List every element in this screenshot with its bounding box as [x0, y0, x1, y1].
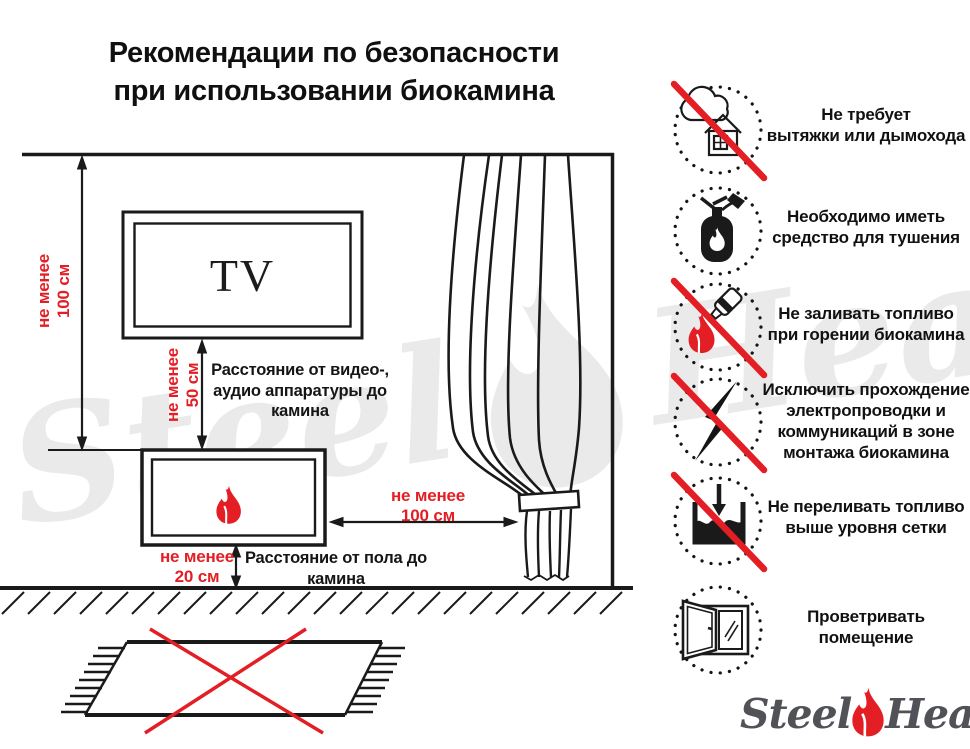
logo-heat-text: Heat	[885, 690, 970, 738]
extinguisher-shape	[701, 193, 745, 262]
infographic: Steel Heat Рекомендации по безопасности …	[0, 0, 970, 749]
fireplace-outline	[142, 450, 325, 545]
open-window-shape	[683, 601, 748, 659]
tv-label: TV	[123, 212, 362, 338]
rule-text-no-chimney: Не требует вытяжки или дымохода	[748, 104, 970, 146]
fuel-bottle-shape	[708, 287, 743, 322]
dim-fireplace-to-curtain: не менее 100 см	[338, 486, 518, 526]
page-title-line2: при использовании биокамина	[58, 72, 610, 110]
logo-flame-icon	[848, 685, 888, 739]
rule-text-no-refill: Не заливать топливо при горении биокамин…	[748, 303, 970, 345]
rule-text-no-wiring: Исключить прохождение электропроводки и …	[748, 379, 970, 463]
dim-wall-to-fireplace: не менее 100 см	[34, 254, 74, 328]
note-floor-distance: Расстояние от пола до камина	[226, 548, 446, 589]
fuel-tank-shape	[695, 484, 743, 542]
rule-text-ventilate: Проветривать помещение	[748, 606, 970, 648]
rule-text-no-overfill: Не переливать топливо выше уровня сетки	[748, 496, 970, 538]
carpet-crossed-out	[61, 629, 405, 733]
floor	[0, 588, 633, 614]
dim-tv-to-fireplace: не менее 50 см	[163, 348, 203, 422]
page-title: Рекомендации по безопасности при использ…	[58, 34, 610, 110]
logo-steel-text: Steel	[740, 690, 851, 738]
curtain-tieback	[519, 491, 579, 511]
steelheat-logo: Steel Heat	[740, 684, 970, 744]
note-av-distance: Расстояние от видео-, аудио аппаратуры д…	[200, 360, 400, 422]
page-title-line1: Рекомендации по безопасности	[58, 34, 610, 72]
rule-text-extinguisher: Необходимо иметь средство для тушения	[748, 206, 970, 248]
